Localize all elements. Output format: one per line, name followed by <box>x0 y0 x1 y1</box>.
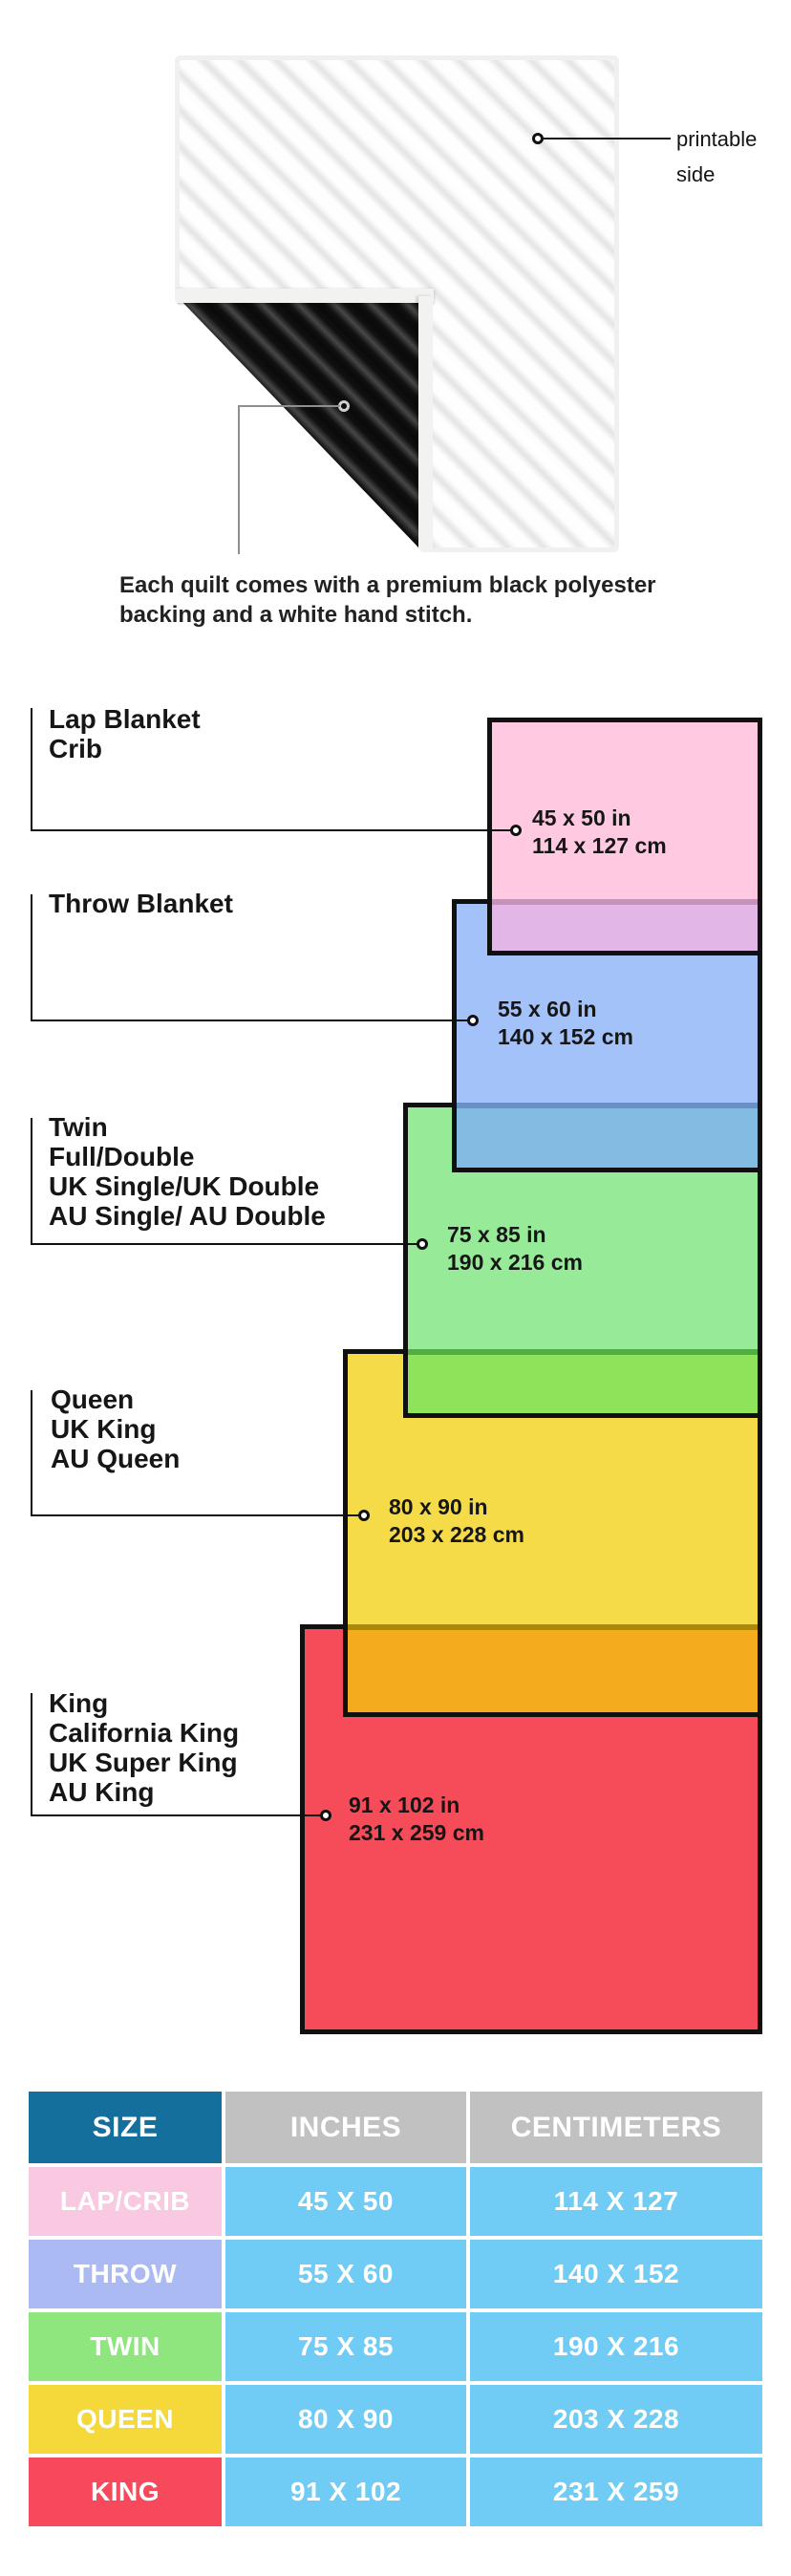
dimensions-throw-cm: 140 x 152 cm <box>498 1023 633 1051</box>
size-label-twin-line1: Twin <box>49 1112 326 1142</box>
table-cell-king-inches: 91 X 102 <box>225 2458 466 2526</box>
callout-line-printable-side <box>544 138 671 140</box>
table-header-size: SIZE <box>29 2092 222 2163</box>
dimensions-king-inches: 91 x 102 in <box>349 1792 484 1819</box>
dimensions-throw: 55 x 60 in 140 x 152 cm <box>498 996 633 1051</box>
size-rect-lap-crib-overlap <box>492 899 758 951</box>
callout-dot-twin <box>417 1238 428 1250</box>
dimensions-king-cm: 231 x 259 cm <box>349 1819 484 1847</box>
size-label-twin-line4: AU Single/ AU Double <box>49 1201 326 1231</box>
table-cell-lap-crib-size: LAP/CRIB <box>29 2167 222 2236</box>
printable-side-label-line2: side <box>676 157 757 192</box>
callout-line-throw-vertical <box>31 894 32 1020</box>
backing-caption: Each quilt comes with a premium black po… <box>119 570 656 630</box>
callout-line-queen-vertical <box>31 1390 32 1515</box>
size-rect-twin-overlap <box>408 1349 758 1413</box>
size-label-throw: Throw Blanket <box>49 889 233 918</box>
quilt-black-backing <box>182 301 423 552</box>
dimensions-throw-inches: 55 x 60 in <box>498 996 633 1023</box>
size-label-twin-line2: Full/Double <box>49 1142 326 1171</box>
table-cell-throw-size: THROW <box>29 2240 222 2308</box>
callout-line-twin-horizontal <box>31 1243 417 1245</box>
table-cell-throw-inches: 55 X 60 <box>225 2240 466 2308</box>
size-label-king-line4: AU King <box>49 1777 239 1807</box>
callout-dot-printable-side <box>532 133 544 144</box>
callout-line-queen-horizontal <box>31 1514 359 1516</box>
table-cell-king-size: KING <box>29 2458 222 2526</box>
size-label-king-line2: California King <box>49 1718 239 1748</box>
quilt-fold-edge-horizontal <box>174 289 434 303</box>
size-table: SIZE INCHES CENTIMETERS LAP/CRIB 45 X 50… <box>29 2092 762 2526</box>
table-cell-lap-crib-centimeters: 114 X 127 <box>470 2167 762 2236</box>
callout-dot-throw <box>467 1015 479 1026</box>
callout-dot-king <box>320 1810 331 1821</box>
dimensions-twin: 75 x 85 in 190 x 216 cm <box>447 1221 583 1277</box>
callout-line-black-backing-vertical <box>238 405 240 554</box>
dimensions-queen-cm: 203 x 228 cm <box>389 1521 524 1549</box>
size-label-twin: Twin Full/Double UK Single/UK Double AU … <box>49 1112 326 1231</box>
table-cell-twin-size: TWIN <box>29 2312 222 2381</box>
size-label-queen-line3: AU Queen <box>51 1444 180 1473</box>
dimensions-lap-crib-inches: 45 x 50 in <box>532 805 667 832</box>
table-cell-throw-centimeters: 140 X 152 <box>470 2240 762 2308</box>
callout-line-king-horizontal <box>31 1814 321 1816</box>
table-cell-twin-centimeters: 190 X 216 <box>470 2312 762 2381</box>
table-cell-queen-inches: 80 X 90 <box>225 2385 466 2454</box>
size-rect-queen-overlap <box>348 1624 758 1712</box>
backing-caption-line1: Each quilt comes with a premium black po… <box>119 570 656 600</box>
table-cell-queen-size: QUEEN <box>29 2385 222 2454</box>
dimensions-twin-cm: 190 x 216 cm <box>447 1249 583 1277</box>
callout-dot-queen <box>358 1510 370 1521</box>
size-label-lap-crib: Lap Blanket Crib <box>49 704 201 763</box>
printable-side-label-line1: printable <box>676 121 757 157</box>
table-cell-twin-inches: 75 X 85 <box>225 2312 466 2381</box>
callout-dot-lap-crib <box>510 825 522 836</box>
backing-caption-line2: backing and a white hand stitch. <box>119 600 656 630</box>
dimensions-lap-crib: 45 x 50 in 114 x 127 cm <box>532 805 667 860</box>
size-label-king-line1: King <box>49 1688 239 1718</box>
callout-line-throw-horizontal <box>31 1020 468 1021</box>
printable-side-label: printable side <box>676 121 757 192</box>
quilt-photo <box>175 55 619 552</box>
size-label-throw-line1: Throw Blanket <box>49 889 233 918</box>
table-cell-lap-crib-inches: 45 X 50 <box>225 2167 466 2236</box>
callout-line-king-vertical <box>31 1693 32 1815</box>
size-rect-throw-overlap <box>457 1103 758 1168</box>
callout-line-lap-crib-vertical <box>31 708 32 830</box>
dimensions-twin-inches: 75 x 85 in <box>447 1221 583 1249</box>
size-label-king-line3: UK Super King <box>49 1748 239 1777</box>
dimensions-queen: 80 x 90 in 203 x 228 cm <box>389 1493 524 1549</box>
size-label-lap-crib-line2: Crib <box>49 734 201 763</box>
dimensions-queen-inches: 80 x 90 in <box>389 1493 524 1521</box>
table-header-centimeters: CENTIMETERS <box>470 2092 762 2163</box>
table-cell-queen-centimeters: 203 X 228 <box>470 2385 762 2454</box>
quilt-size-infographic: printable side Each quilt comes with a p… <box>0 0 791 2576</box>
size-label-queen-line2: UK King <box>51 1414 180 1444</box>
dimensions-king: 91 x 102 in 231 x 259 cm <box>349 1792 484 1847</box>
callout-line-black-backing-horizontal <box>239 405 340 407</box>
size-label-lap-crib-line1: Lap Blanket <box>49 704 201 734</box>
size-label-twin-line3: UK Single/UK Double <box>49 1171 326 1201</box>
callout-line-lap-crib-horizontal <box>31 829 511 831</box>
quilt-fold-edge-vertical <box>418 296 433 557</box>
size-label-queen-line1: Queen <box>51 1385 180 1414</box>
table-cell-king-centimeters: 231 X 259 <box>470 2458 762 2526</box>
dimensions-lap-crib-cm: 114 x 127 cm <box>532 832 667 860</box>
table-header-inches: INCHES <box>225 2092 466 2163</box>
size-label-queen: Queen UK King AU Queen <box>51 1385 180 1473</box>
size-label-king: King California King UK Super King AU Ki… <box>49 1688 239 1807</box>
callout-line-twin-vertical <box>31 1118 32 1244</box>
